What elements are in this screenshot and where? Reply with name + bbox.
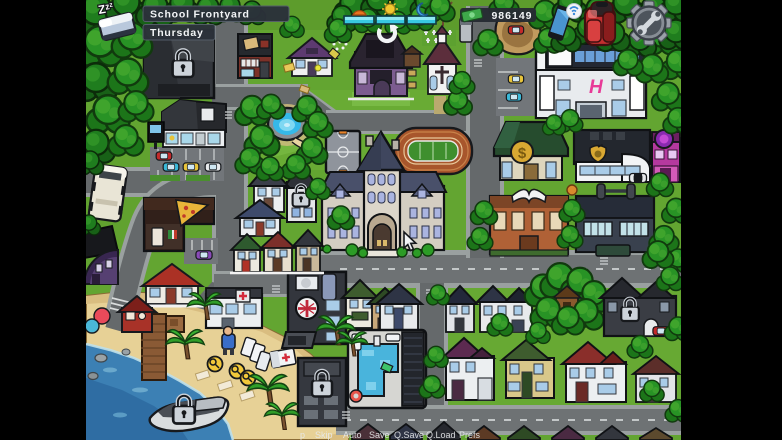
svg-text:Save: Save: [369, 430, 390, 440]
svg-text:$: $: [518, 145, 527, 162]
svg-text:Prefs: Prefs: [459, 430, 481, 440]
svg-text:Q.Load: Q.Load: [426, 430, 456, 440]
svg-text:986149: 986149: [491, 10, 532, 22]
svg-text:Q.Save: Q.Save: [394, 430, 424, 440]
svg-text:Skip: Skip: [315, 430, 333, 440]
svg-text:Thursday: Thursday: [150, 27, 204, 39]
svg-text:p: p: [300, 430, 305, 440]
svg-text:School Frontyard: School Frontyard: [150, 9, 250, 21]
svg-text:H: H: [589, 77, 604, 98]
svg-text:Auto: Auto: [343, 430, 362, 440]
